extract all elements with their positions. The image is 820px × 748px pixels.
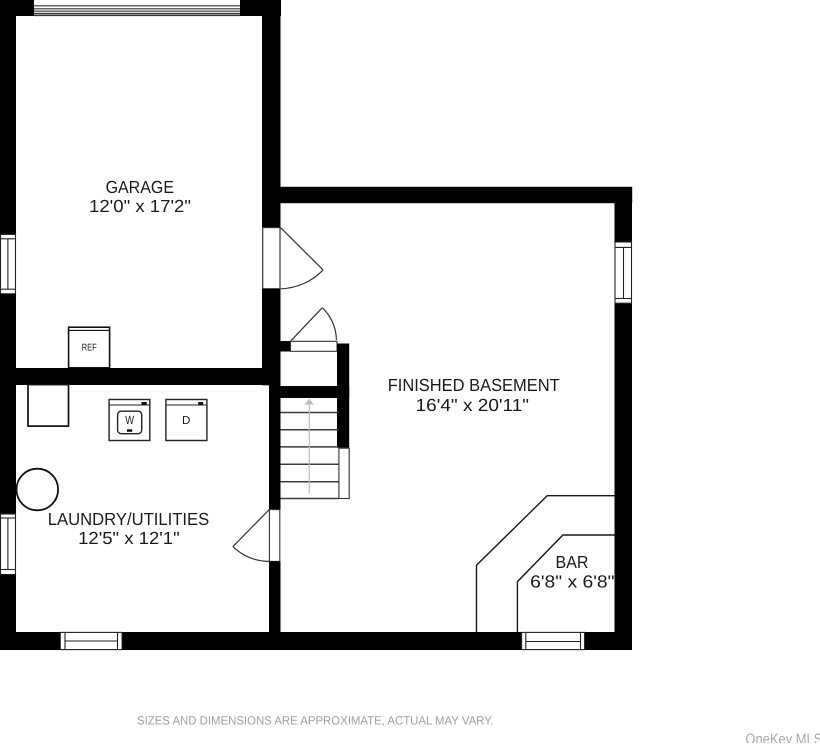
svg-text:12'0" x 17'2": 12'0" x 17'2": [89, 196, 191, 216]
svg-text:OneKey MLS: OneKey MLS: [745, 731, 820, 743]
svg-text:LAUNDRY/UTILITIES: LAUNDRY/UTILITIES: [48, 509, 210, 529]
svg-text:16'4" x 20'11": 16'4" x 20'11": [416, 395, 530, 415]
svg-text:12'5" x 12'1": 12'5" x 12'1": [78, 528, 180, 548]
svg-text:6'8" x 6'8": 6'8" x 6'8": [530, 571, 614, 591]
svg-text:W: W: [125, 413, 134, 427]
svg-text:REF: REF: [82, 343, 97, 354]
svg-text:FINISHED BASEMENT: FINISHED BASEMENT: [388, 375, 560, 395]
svg-text:GARAGE: GARAGE: [106, 177, 174, 197]
svg-text:BAR: BAR: [556, 552, 589, 572]
svg-text:SIZES AND DIMENSIONS ARE APPRO: SIZES AND DIMENSIONS ARE APPROXIMATE, AC…: [137, 714, 494, 728]
svg-text:D: D: [182, 415, 190, 427]
